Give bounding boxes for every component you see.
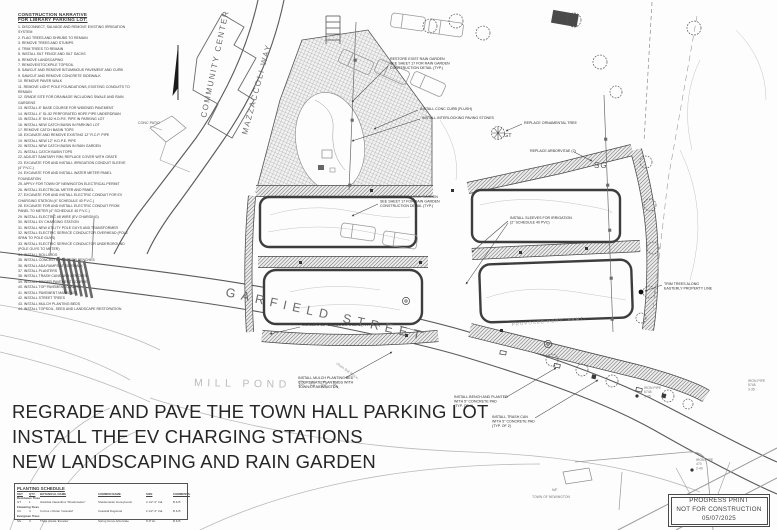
narrative-subtitle: FOR LIBRARY PARKING LOT:	[18, 17, 130, 22]
mazzaccoli-way-label: MAZZACCOLI WAY	[240, 43, 273, 136]
table-cell: Spring Grove Arborvitae	[98, 519, 145, 524]
conc-patio-shape	[150, 116, 186, 142]
narrative-item: 22. ADJUST SANITARY RIM; REPLACE COVER W…	[18, 155, 130, 160]
narrative-item: 8. SAWCUT AND REMOVE BITUMINOUS PAVEMENT…	[18, 68, 130, 73]
narrative-item: 12. GRADE SITE FOR DRAINAGE INCLUDING SW…	[18, 95, 130, 106]
callout-caliper-trees: INSTALL 2 1/2"-3" CALIPER TREES (TYP. OF…	[302, 323, 380, 327]
trim-trees-point	[639, 290, 644, 295]
stamp-line: 05/07/2025	[672, 515, 767, 524]
narrative-item: 33. INSTALL ELECTRIC SERVICE CONDUCTOR U…	[18, 242, 130, 253]
narrative-item: 23. EXCAVATE FOR AND INSTALL IRRIGATION …	[18, 161, 130, 172]
callout-restore-rain-garden: RESTORE EXIST RAIN GARDENSEE SHEET 17 FO…	[390, 57, 450, 70]
callout-replace-arborvitae: REPLACE ARBORVITAE (2)	[530, 149, 576, 153]
annotation-text: REGRADE AND PAVE THE TOWN HALL PARKING L…	[12, 399, 489, 474]
mazzaccoli-west-edge	[114, 0, 258, 254]
stamp-line: PROGRESS PRINT	[672, 497, 767, 506]
narrative-item: 11. REMOVE LIGHT POLE FOUNDATIONS; EXIST…	[18, 85, 130, 96]
paver-plaza	[256, 30, 432, 197]
gt-tree-center	[492, 127, 504, 139]
narrative-item: 24. EXCAVATE FOR AND INSTALL WATER METER…	[18, 171, 130, 182]
stairs	[326, 16, 340, 44]
narrative-item: 13. INSTALL 8" BASE COURSE FOR WIDENED P…	[18, 106, 130, 111]
callout-interlocking-pavers: INSTALL INTERLOCKING PAVING STONES	[422, 116, 494, 120]
narrative-item: 44. INSTALL TOPSOIL, SEED AND LANDSCAPE …	[18, 307, 130, 312]
survey-note: IRON PIPE4702-40	[696, 458, 714, 470]
annotation-line: INSTALL THE EV CHARGING STATIONS	[12, 424, 489, 449]
table-cell: B & B	[173, 519, 187, 524]
conc-patio-label: CONC PATIO	[138, 121, 160, 125]
callout-replace-ornamental-tree: REPLACE ORNAMENTAL TREE	[524, 121, 577, 125]
town-of-newington-label: TOWN OF NEWINGTON	[532, 495, 570, 499]
narrative-item: 1. DISCONNECT, SALVAGE AND REMOVE EXISTI…	[18, 25, 130, 36]
callout-trim-trees: TRIM TREES ALONGEASTERLY PROPERTY LINE	[664, 282, 713, 290]
community-center-building	[150, 14, 256, 172]
survey-note: IRON PIPE57483-35	[748, 379, 766, 391]
progress-print-stamp: PROGRESS PRINT NOT FOR CONSTRUCTION 05/0…	[668, 494, 770, 527]
narrative-item: 27. EXCAVATE FOR AND INSTALL ELECTRIC CO…	[18, 193, 130, 204]
table-cell: SG	[17, 519, 28, 524]
construction-narrative: CONSTRUCTION NARRATIVE FOR LIBRARY PARKI…	[18, 12, 130, 312]
table-cell: 3	[29, 519, 39, 524]
callout-construct-rain-garden: CONSTRUCT NEW RAIN GARDENSEE SHEET 17 FO…	[380, 195, 440, 208]
callout-mulch-bed: INSTALL MULCH PLANTING BEDCOORDINATE PLA…	[298, 376, 354, 389]
parking-island	[479, 259, 633, 322]
narrative-item: 32. INSTALL ELECTRIC SERVICE CONDUCTOR O…	[18, 231, 130, 242]
planting-schedule: PLANTING SCHEDULE KEY QTY. BOTANICAL NAM…	[14, 483, 188, 520]
table-cell: Thuja plicata 'Excelsa'	[40, 519, 97, 524]
nf-label: N/F	[552, 488, 557, 492]
callout-conc-curb: INSTALL CONC CURB (FLUSH)	[420, 107, 472, 111]
planting-schedule-title: PLANTING SCHEDULE	[17, 486, 185, 491]
narrative-list: 1. DISCONNECT, SALVAGE AND REMOVE EXISTI…	[18, 25, 130, 312]
survey-note: IRON PIPE67483-35	[644, 386, 662, 398]
narrative-item: 25. APPLY FOR TOWN OF NEWINGTON ELECTRIC…	[18, 182, 130, 187]
narrative-item: 28. EXCAVATE FOR AND INSTALL ELECTRIC CO…	[18, 204, 130, 215]
table-cell: 6'-8' Ht.	[146, 519, 172, 524]
trash-enclosure	[551, 10, 579, 27]
stamp-line: NOT FOR CONSTRUCTION	[672, 506, 767, 515]
annotation-line: NEW LANDSCAPING AND RAIN GARDEN	[12, 449, 489, 474]
gt-key-label: GT	[504, 133, 512, 139]
sg-key-label: SG	[594, 161, 608, 170]
annotation-line: REGRADE AND PAVE THE TOWN HALL PARKING L…	[12, 399, 489, 424]
planting-schedule-table: KEY QTY. BOTANICAL NAME COMMON NAME SIZE…	[17, 492, 185, 524]
callout-trash-can: INSTALL TRASH CANWITH 5" CONCRETE PAD(TY…	[492, 415, 535, 428]
stamp-inner-border: PROGRESS PRINT NOT FOR CONSTRUCTION 05/0…	[671, 497, 768, 525]
site-plan-page: GARFIELD STREET MILL POND PARK MAZZACCOL…	[0, 0, 777, 530]
north-arrow	[173, 45, 179, 100]
